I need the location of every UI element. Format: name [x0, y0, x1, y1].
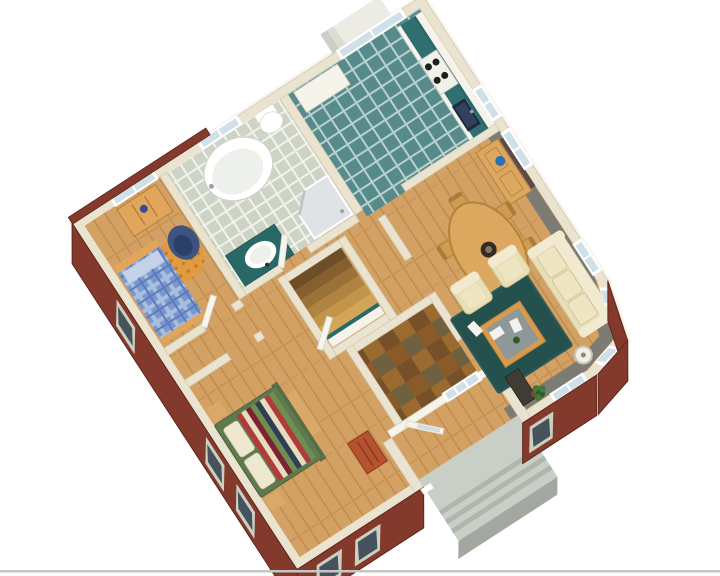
isometric-plan-group — [41, 0, 693, 576]
floor-plan-rendering — [0, 0, 720, 576]
page-bottom-rule — [0, 570, 720, 573]
floor-plan-stage — [0, 0, 720, 576]
